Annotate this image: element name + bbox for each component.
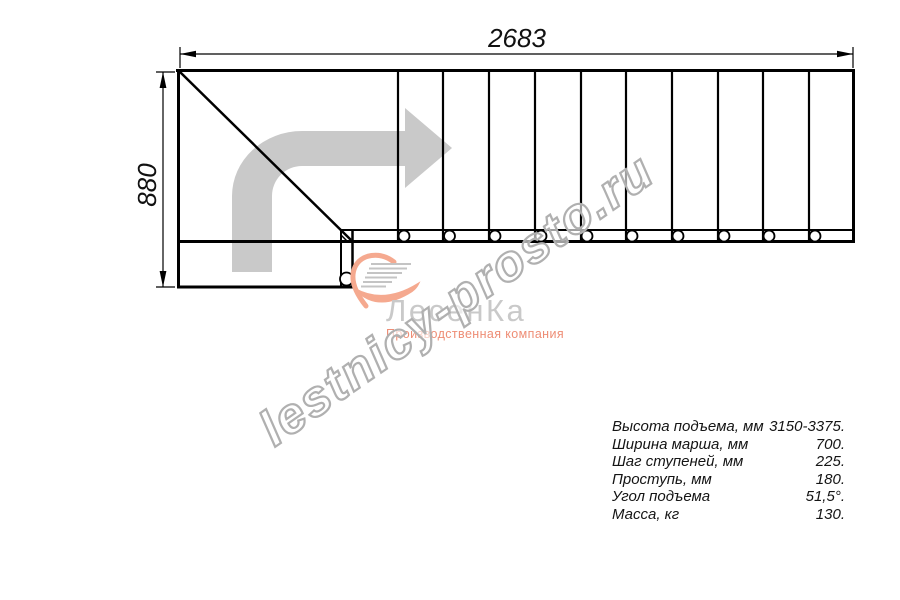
spec-value: 225. bbox=[816, 453, 845, 471]
spec-label: Масса, кг bbox=[612, 506, 679, 524]
stair-drawing-page: 2683 880 Лес bbox=[0, 0, 900, 600]
spec-value: 130. bbox=[816, 506, 845, 524]
spec-label: Высота подъема, мм bbox=[612, 418, 764, 436]
spec-label: Проступь, мм bbox=[612, 471, 712, 489]
spec-value: 700. bbox=[816, 436, 845, 454]
dimension-arrowhead bbox=[160, 271, 167, 287]
spec-label: Угол подъема bbox=[612, 488, 710, 506]
watermark-text: lestnicy-prosto.ru bbox=[249, 142, 664, 456]
spec-value: 51,5°. bbox=[806, 488, 845, 506]
dimension-arrowhead bbox=[837, 51, 853, 57]
bolt-hole bbox=[673, 231, 684, 242]
spec-row: Высота подъема, мм 3150-3375. bbox=[612, 418, 845, 436]
bolt-hole bbox=[719, 231, 730, 242]
spec-row: Ширина марша, мм 700. bbox=[612, 436, 845, 454]
bolt-hole bbox=[764, 231, 775, 242]
spec-row: Проступь, мм 180. bbox=[612, 471, 845, 489]
spec-label: Шаг ступеней, мм bbox=[612, 453, 743, 471]
spec-row: Угол подъема 51,5°. bbox=[612, 488, 845, 506]
bolt-hole bbox=[627, 231, 638, 242]
bolt-hole bbox=[810, 231, 821, 242]
spec-label: Ширина марша, мм bbox=[612, 436, 748, 454]
height-dimension-label: 880 bbox=[132, 163, 162, 207]
dimension-arrowhead bbox=[160, 72, 167, 88]
spec-row: Шаг ступеней, мм 225. bbox=[612, 453, 845, 471]
spec-value: 3150-3375. bbox=[769, 418, 845, 436]
bolt-hole bbox=[444, 231, 455, 242]
spec-row: Масса, кг 130. bbox=[612, 506, 845, 524]
dimension-arrowhead bbox=[180, 51, 196, 57]
bolt-hole bbox=[399, 231, 410, 242]
width-dimension-label: 2683 bbox=[487, 23, 546, 53]
logo-step-lines bbox=[361, 264, 411, 287]
specs-table: Высота подъема, мм 3150-3375. Ширина мар… bbox=[612, 418, 845, 523]
spec-value: 180. bbox=[816, 471, 845, 489]
